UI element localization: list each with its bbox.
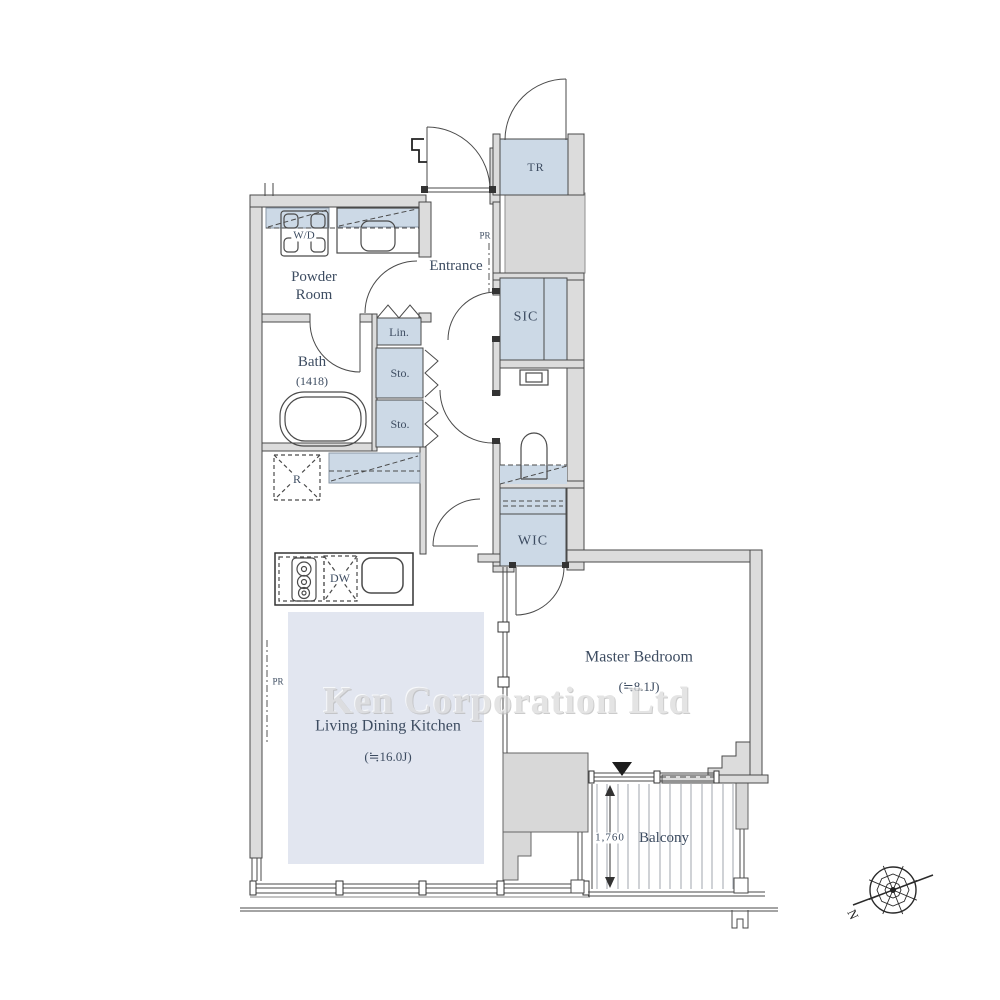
wall-fitting-icon bbox=[412, 139, 427, 162]
ldk-size-label: (≒16.0J) bbox=[364, 749, 411, 765]
bath-label: Bath bbox=[298, 353, 326, 371]
compass-north-label: N bbox=[844, 907, 862, 922]
balcony-dimension-label: 1,760 bbox=[593, 833, 627, 844]
storage-upper-folding-door bbox=[425, 350, 438, 397]
kitchen-overhead-cabinet bbox=[329, 453, 420, 483]
bathtub-icon bbox=[280, 392, 366, 446]
entrance-door-swing bbox=[427, 127, 490, 192]
storage-upper-label: Sto. bbox=[390, 366, 409, 380]
linen-folding-door bbox=[377, 305, 421, 318]
lower-step-block bbox=[503, 832, 531, 880]
wic-door-swing bbox=[516, 567, 564, 615]
wic-label: WIC bbox=[518, 534, 548, 551]
pipe-space-entrance-label: PR bbox=[479, 231, 490, 242]
powder-room-label: Powder Room bbox=[276, 268, 352, 304]
master-bedroom-label: Master Bedroom bbox=[585, 647, 693, 666]
linen-label: Lin. bbox=[389, 325, 409, 339]
drain-bracket bbox=[732, 910, 748, 928]
sic-label: SIC bbox=[514, 310, 539, 327]
pipe-shaft-block bbox=[505, 193, 585, 273]
watermark: Ken Corporation Ltd bbox=[323, 679, 690, 723]
bath-size-label: (1418) bbox=[296, 374, 328, 388]
washer-dryer-label: W/D bbox=[291, 231, 316, 242]
dishwasher-label: DW bbox=[328, 572, 352, 584]
sic-door-swing bbox=[448, 292, 496, 340]
wic-box bbox=[500, 488, 566, 566]
ldk-door-swing bbox=[433, 499, 480, 546]
toilet-icon bbox=[520, 370, 548, 479]
compass-icon: N bbox=[844, 866, 933, 922]
ldk-floor bbox=[288, 612, 484, 864]
floor-plan: N Entrance Powder Room W/D Bath (1418) L… bbox=[0, 0, 1000, 1000]
storage-lower-folding-door bbox=[425, 402, 438, 447]
storage-lower-label: Sto. bbox=[390, 417, 409, 431]
trunk-room-label: TR bbox=[527, 160, 544, 174]
balcony-label: Balcony bbox=[639, 829, 689, 847]
balcony-pillar bbox=[736, 783, 748, 829]
pipe-space-ldk-label: PR bbox=[272, 677, 283, 688]
ldk-bedroom-partition bbox=[498, 567, 509, 753]
balcony-divider-right bbox=[740, 829, 744, 878]
balcony-entry-marker-icon bbox=[612, 762, 632, 776]
entrance-label: Entrance bbox=[429, 257, 482, 275]
trunk-room-door-swing bbox=[505, 79, 566, 140]
ground-line bbox=[240, 908, 778, 911]
toilet-door-swing bbox=[440, 390, 493, 443]
refrigerator-label: R bbox=[291, 473, 303, 485]
lower-structure-block bbox=[503, 753, 588, 832]
floor-plan-drawing: N bbox=[0, 0, 1000, 1000]
